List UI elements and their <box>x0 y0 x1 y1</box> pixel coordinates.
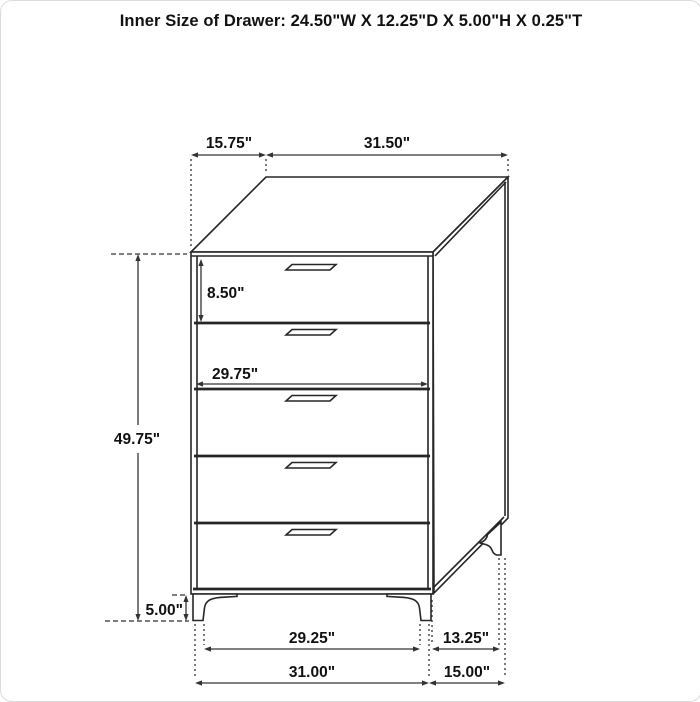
drawer-handle-4 <box>286 463 336 469</box>
dim-overall-width: 31.00" <box>195 664 429 686</box>
drawer-handle-3 <box>286 396 336 402</box>
drawer-handle-2 <box>286 330 336 336</box>
dim-body-height: 49.75" <box>114 254 160 621</box>
dim-side-leg-span: 13.25" <box>432 630 500 652</box>
dimension-diagram-page: Inner Size of Drawer: 24.50"W X 12.25"D … <box>0 0 700 702</box>
dim-label-top-width: 31.50" <box>364 135 410 152</box>
dim-label-drawer-height: 8.50" <box>207 285 245 302</box>
dim-label-side-leg-span: 13.25" <box>443 630 489 647</box>
dim-top-depth: 15.75" <box>191 135 266 158</box>
dim-overall-depth: 15.00" <box>429 664 505 686</box>
dim-label-front-leg-span: 29.25" <box>289 630 335 647</box>
chest-front-face <box>191 252 433 594</box>
dim-label-overall-width: 31.00" <box>289 664 335 681</box>
chest-body <box>191 177 508 621</box>
dim-label-opening-width: 29.75" <box>212 366 258 383</box>
dim-leg-height: 5.00" <box>145 595 188 621</box>
dim-label-body-height: 49.75" <box>114 431 160 448</box>
dim-label-leg-height: 5.00" <box>145 602 183 619</box>
drawer-handle-5 <box>286 530 336 536</box>
dim-top-width: 31.50" <box>266 135 508 158</box>
dim-label-overall-depth: 15.00" <box>444 664 490 681</box>
dim-front-leg-span: 29.25" <box>204 630 420 652</box>
chest-dimension-drawing: 15.75" 31.50" 49.75" 5.00" <box>1 1 700 701</box>
dim-label-top-depth: 15.75" <box>206 135 252 152</box>
front-left-leg <box>193 594 237 621</box>
drawer-handle-1 <box>286 265 336 271</box>
front-right-leg <box>387 594 431 621</box>
